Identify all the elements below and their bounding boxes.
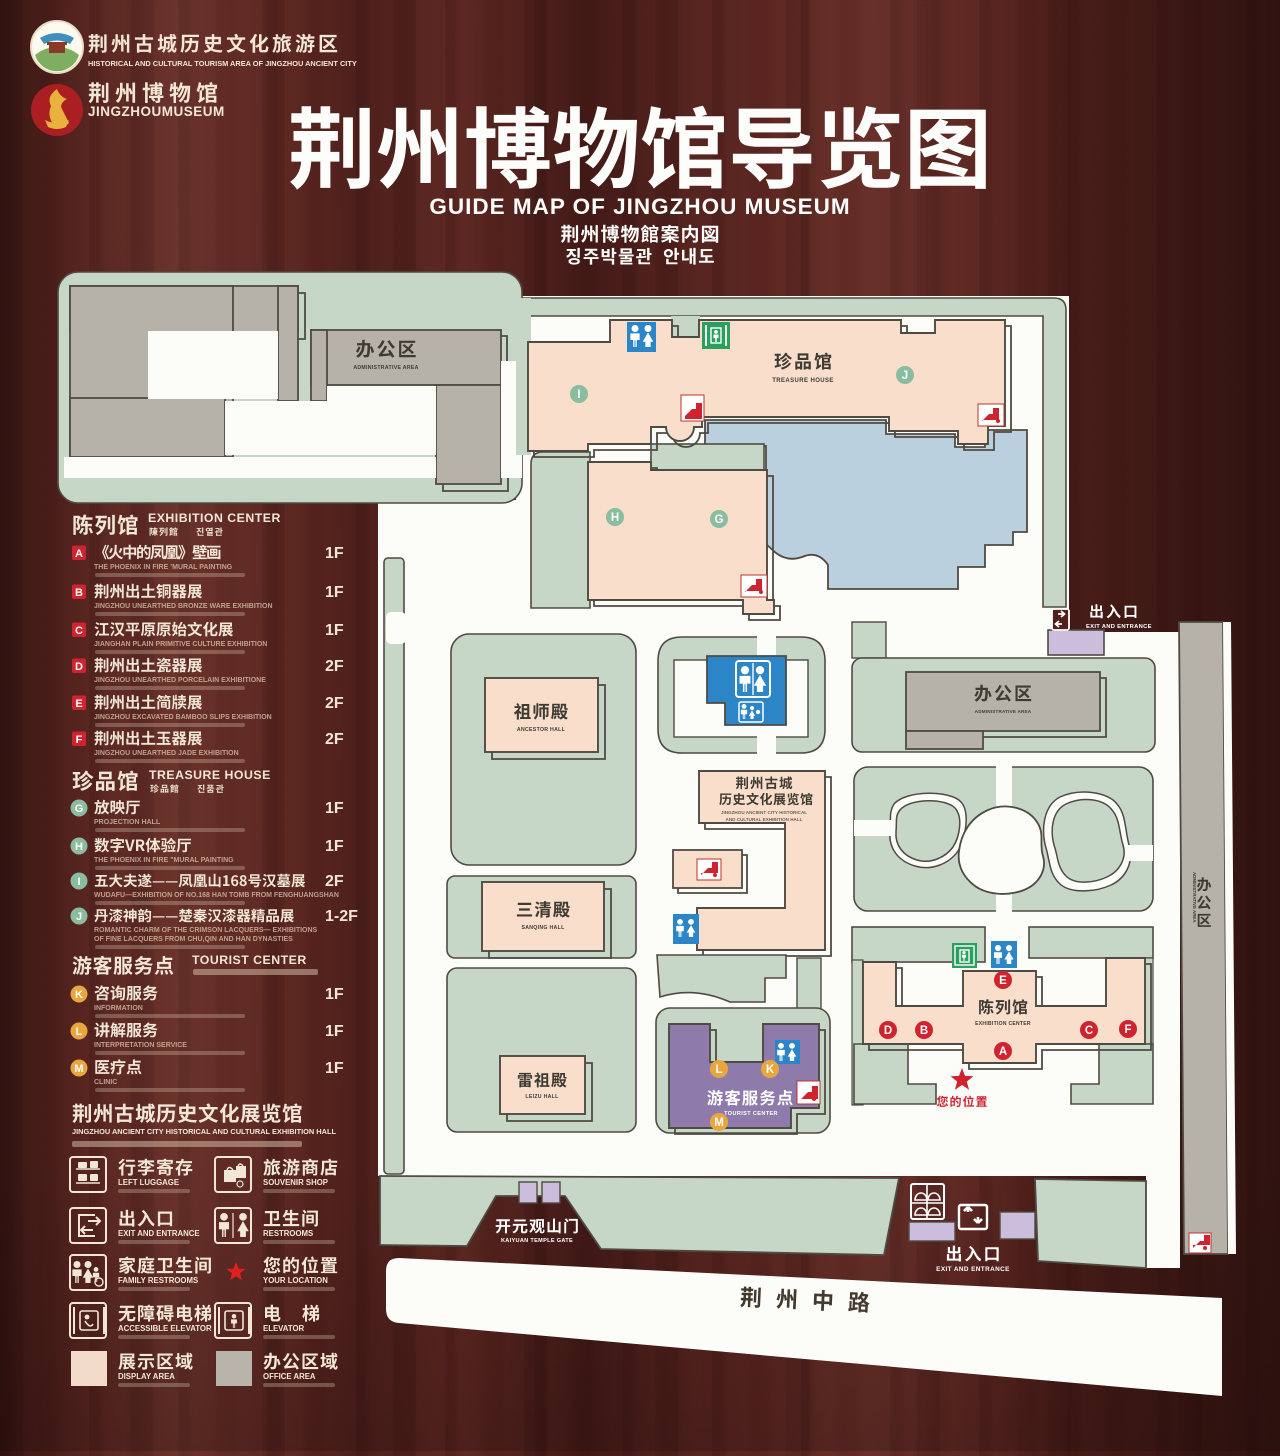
svg-text:EXHIBITION CENTER: EXHIBITION CENTER xyxy=(148,511,281,525)
svg-text:YOUR LOCATION: YOUR LOCATION xyxy=(263,1276,328,1285)
svg-text:JINGZHOU UNEARTHED PORCELAIN E: JINGZHOU UNEARTHED PORCELAIN EXHIBITIONE xyxy=(94,677,266,684)
svg-text:K: K xyxy=(75,989,83,1001)
svg-text:2F: 2F xyxy=(325,873,344,890)
svg-text:TOURIST CENTER: TOURIST CENTER xyxy=(724,1111,778,1117)
svg-text:G: G xyxy=(75,803,84,815)
svg-text:OF FINE LACQUERS FROM CHU,QIN: OF FINE LACQUERS FROM CHU,QIN AND HAN DY… xyxy=(94,936,293,943)
svg-text:I: I xyxy=(577,389,580,401)
svg-text:2F: 2F xyxy=(325,695,344,712)
svg-text:2F: 2F xyxy=(325,658,344,675)
svg-text:ANCESTOR HALL: ANCESTOR HALL xyxy=(517,727,566,733)
svg-text:G: G xyxy=(715,514,724,526)
svg-text:RESTROOMS: RESTROOMS xyxy=(263,1229,313,1238)
svg-text:THE PHOENIX IN FIRE "MURAL PAI: THE PHOENIX IN FIRE "MURAL PAINTING xyxy=(94,857,234,864)
svg-text:JINGZHOU ANCIENT CITY HISTORIC: JINGZHOU ANCIENT CITY HISTORICAL AND CUL… xyxy=(72,1127,336,1136)
svg-text:KAIYUAN TEMPLE GATE: KAIYUAN TEMPLE GATE xyxy=(501,1238,573,1244)
svg-text:TREASURE HOUSE: TREASURE HOUSE xyxy=(772,378,834,384)
svg-text:B: B xyxy=(75,587,83,599)
svg-text:TOURIST CENTER: TOURIST CENTER xyxy=(192,953,307,967)
svg-text:ADMINISTRATIVE AREA: ADMINISTRATIVE AREA xyxy=(353,365,418,371)
svg-text:JINGZHOU EXCAVATED BAMBOO SLIP: JINGZHOU EXCAVATED BAMBOO SLIPS EXHIBITI… xyxy=(94,714,272,721)
svg-text:A: A xyxy=(999,1046,1007,1058)
svg-text:PROJECTION HALL: PROJECTION HALL xyxy=(94,819,161,826)
svg-text:EXHIBITION CENTER: EXHIBITION CENTER xyxy=(975,1021,1031,1027)
svg-text:A: A xyxy=(75,548,83,560)
svg-text:1F: 1F xyxy=(325,1060,344,1077)
svg-text:J: J xyxy=(902,370,908,382)
svg-text:2F: 2F xyxy=(325,731,344,748)
svg-text:H: H xyxy=(75,841,83,853)
svg-text:ADMINISTRATIVE AREA: ADMINISTRATIVE AREA xyxy=(1192,872,1197,923)
svg-text:DISPLAY AREA: DISPLAY AREA xyxy=(118,1372,175,1381)
svg-text:LEFT LUGGAGE: LEFT LUGGAGE xyxy=(118,1178,179,1187)
svg-text:AND CULTURAL EXHIBITION HALL: AND CULTURAL EXHIBITION HALL xyxy=(726,817,803,822)
svg-text:ADMINISTRATIVE AREA: ADMINISTRATIVE AREA xyxy=(975,709,1032,714)
svg-text:EXIT AND ENTRANCE: EXIT AND ENTRANCE xyxy=(936,1266,1010,1273)
svg-text:E: E xyxy=(75,698,82,710)
svg-text:ACCESSIBLE ELEVATOR: ACCESSIBLE ELEVATOR xyxy=(118,1324,212,1333)
svg-text:JINGZHOU ANCIENT CITY HISTORIC: JINGZHOU ANCIENT CITY HISTORICAL xyxy=(721,810,807,815)
svg-text:GUIDE MAP OF JINGZHOU MUSEUM: GUIDE MAP OF JINGZHOU MUSEUM xyxy=(429,194,850,219)
svg-text:EXIT AND ENTRANCE: EXIT AND ENTRANCE xyxy=(118,1229,200,1238)
svg-text:OFFICE AREA: OFFICE AREA xyxy=(263,1372,316,1381)
svg-text:1F: 1F xyxy=(325,1023,344,1040)
svg-text:F: F xyxy=(1124,1024,1131,1036)
svg-text:L: L xyxy=(715,1064,722,1076)
svg-text:D: D xyxy=(884,1025,892,1037)
svg-text:LEIZU HALL: LEIZU HALL xyxy=(525,1094,559,1100)
svg-text:TREASURE HOUSE: TREASURE HOUSE xyxy=(149,768,271,782)
svg-text:EXIT AND ENTRANCE: EXIT AND ENTRANCE xyxy=(1086,624,1152,630)
svg-text:M: M xyxy=(714,1117,724,1129)
svg-text:JINGZHOU UNEARTHED JADE EXHIBI: JINGZHOU UNEARTHED JADE EXHIBITION xyxy=(94,750,239,757)
svg-text:SOUVENIR SHOP: SOUVENIR SHOP xyxy=(263,1178,328,1187)
svg-text:HISTORICAL AND CULTURAL TOURIS: HISTORICAL AND CULTURAL TOURISM AREA OF … xyxy=(88,59,357,68)
svg-text:C: C xyxy=(75,625,83,637)
svg-text:FAMILY RESTROOMS: FAMILY RESTROOMS xyxy=(118,1276,198,1285)
svg-text:JINGZHOUMUSEUM: JINGZHOUMUSEUM xyxy=(88,104,225,119)
svg-text:1F: 1F xyxy=(325,986,344,1003)
svg-text:K: K xyxy=(766,1064,775,1076)
svg-text:1F: 1F xyxy=(325,622,344,639)
svg-text:ROMANTIC CHARM OF THE CRIMSON: ROMANTIC CHARM OF THE CRIMSON LACQUERS— … xyxy=(94,927,318,934)
svg-text:1-2F: 1-2F xyxy=(325,908,358,925)
svg-text:ELEVATOR: ELEVATOR xyxy=(263,1324,305,1333)
svg-text:THE PHOENIX IN FIRE ’MURAL PAI: THE PHOENIX IN FIRE ’MURAL PAINTING xyxy=(94,564,233,571)
svg-text:1F: 1F xyxy=(325,584,344,601)
svg-text:SANQING HALL: SANQING HALL xyxy=(521,925,565,931)
svg-text:1F: 1F xyxy=(325,545,344,562)
svg-text:JINGZHOU UNEARTHED BRONZE WARE: JINGZHOU UNEARTHED BRONZE WARE EXHIBITIO… xyxy=(94,603,273,610)
svg-text:H: H xyxy=(611,512,619,524)
svg-text:F: F xyxy=(76,734,83,746)
svg-text:D: D xyxy=(75,661,83,673)
svg-text:M: M xyxy=(74,1063,83,1075)
svg-text:C: C xyxy=(1085,1025,1093,1037)
svg-text:INFORMATION: INFORMATION xyxy=(94,1005,143,1012)
svg-text:1F: 1F xyxy=(325,800,344,817)
svg-text:L: L xyxy=(76,1026,83,1038)
svg-text:I: I xyxy=(77,876,80,888)
svg-text:E: E xyxy=(999,975,1007,987)
svg-text:INTERPRETATION SERVICE: INTERPRETATION SERVICE xyxy=(94,1042,187,1049)
svg-text:CLINIC: CLINIC xyxy=(94,1079,117,1086)
svg-text:JIANGHAN PLAIN PRIMITIVE CULTU: JIANGHAN PLAIN PRIMITIVE CULTURE EXHIBIT… xyxy=(94,641,267,648)
svg-text:B: B xyxy=(920,1025,928,1037)
svg-text:J: J xyxy=(76,911,82,923)
svg-text:WUDAFU—EXHIBITION OF NO.168 HA: WUDAFU—EXHIBITION OF NO.168 HAN TOMB FRO… xyxy=(94,892,339,899)
svg-text:1F: 1F xyxy=(325,838,344,855)
